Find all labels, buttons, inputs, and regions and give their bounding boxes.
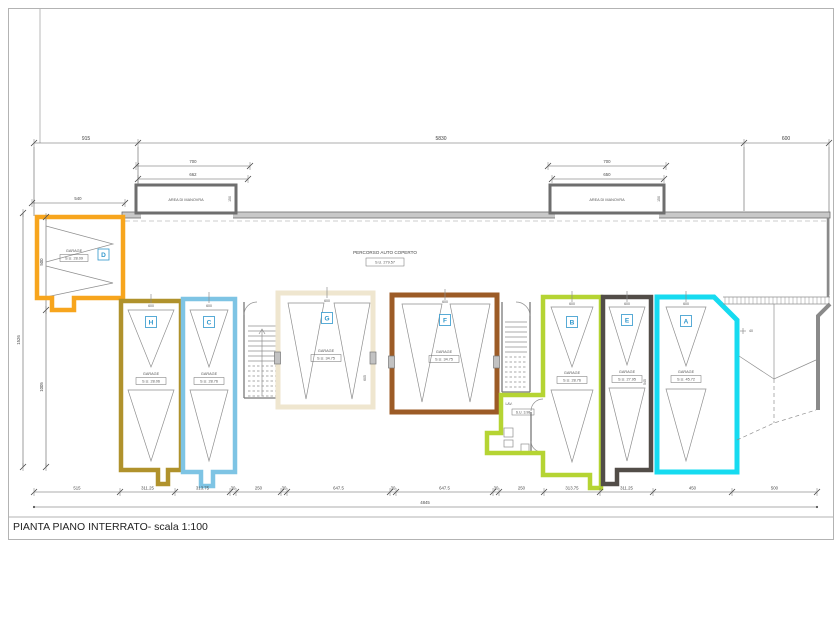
bottom-dim-label: 313.75: [565, 486, 579, 491]
dim-manovra-left-outer: 700: [189, 159, 197, 164]
annex-rooms: LAV. S.U. 3.98: [504, 399, 543, 453]
boundary-wall: AREA DI MANOVRA AREA DI MANOVRA 150 150: [122, 185, 830, 297]
garage-h-su: S.U. 28.06: [142, 380, 160, 384]
dim-g-side: 605: [363, 375, 367, 381]
garage-d-letter: D: [101, 252, 106, 259]
bottom-dim-label: 313.75: [196, 486, 210, 491]
garage-a-topdim: 600: [683, 302, 689, 306]
garage-h-outline: [121, 301, 181, 484]
garage-f-su: S.U. 34.75: [435, 358, 453, 362]
garage-a-letter: A: [684, 319, 689, 326]
retaining-wall-hatch: [725, 297, 829, 304]
garage-f-topdim: 600: [442, 300, 448, 304]
bottom-dim-label: 250: [518, 486, 526, 491]
bottom-dim-label: 250: [255, 486, 263, 491]
garage-h-label: GARAGE: [143, 372, 160, 376]
bottom-dim-label: 30: [391, 486, 396, 491]
bottom-dim-label: 30: [282, 486, 287, 491]
garage-d-su: S.U. 28.09: [65, 257, 83, 261]
garage-b-su: S.U. 28.76: [563, 379, 581, 383]
dim-e-side: 545: [643, 379, 647, 385]
garage-g: 600 G GARAGE S.U. 34.75 605: [275, 287, 377, 407]
stairwell-left: [244, 302, 278, 398]
dim-manovra-left-inner: 662: [189, 172, 197, 177]
bottom-dim-label: 515: [73, 486, 81, 491]
stairwell-right: [502, 302, 530, 392]
bottom-dim-label: 450: [689, 486, 697, 491]
area-manovra-right-label: AREA DI MANOVRA: [589, 198, 625, 202]
dim-manovra-depth-right: 150: [657, 196, 661, 202]
dim-manovra-right-outer: 700: [603, 159, 611, 164]
garage-c-su: S.U. 28.76: [200, 380, 218, 384]
garage-b-letter: B: [570, 320, 575, 327]
dim-d-width: 540: [74, 196, 82, 201]
garage-g-topdim: 600: [324, 299, 330, 303]
garage-f-letter: F: [443, 318, 447, 325]
manovra-dimensions: 700 662 700 650: [136, 159, 666, 179]
garage-b: 600 B GARAGE S.U. 28.76: [487, 291, 601, 488]
garage-d-width-dim: 540: [32, 196, 125, 203]
garage-g-door-stub-left: [275, 352, 281, 364]
garage-a: 600 A GARAGE S.U. 45.72 40: [657, 291, 753, 472]
garage-h-letter: H: [149, 320, 154, 327]
title-block: PIANTA PIANO INTERRATO- scala 1:100: [13, 521, 208, 533]
dim-bottom-total: 4845: [420, 500, 430, 505]
garage-e-topdim: 600: [624, 302, 630, 306]
garage-d-outline: [37, 217, 123, 310]
garage-b-label: GARAGE: [564, 371, 581, 375]
garage-a-outline: [657, 297, 737, 472]
garage-f-label: GARAGE: [436, 350, 453, 354]
annex-room-label: LAV.: [505, 402, 512, 406]
garage-g-label: GARAGE: [318, 349, 335, 353]
bottom-dim-label: 647.5: [439, 486, 450, 491]
dim-manovra-right-inner: 650: [603, 172, 611, 177]
garage-f-door-stub-left: [389, 356, 395, 368]
annex-room-su: S.U. 3.98: [516, 411, 531, 415]
garage-e-letter: E: [625, 318, 630, 325]
dim-manovra-depth-left: 150: [228, 196, 232, 202]
garage-c-letter: C: [207, 320, 212, 327]
garage-h: 600 H GARAGE S.U. 28.06: [121, 294, 181, 484]
dim-left-upper: 500: [39, 258, 44, 266]
plan-drawing: 915 5830 600 700 662 700 650 540 1526 50…: [0, 0, 840, 630]
bottom-dim-label: 311.25: [141, 486, 154, 491]
sheet-title: PIANTA PIANO INTERRATO- scala 1:100: [13, 521, 208, 533]
bottom-dim-label: 30: [494, 486, 499, 491]
bottom-dim-label: 647.5: [333, 486, 344, 491]
dim-top-middle: 5830: [435, 136, 446, 142]
bottom-dimension-row: 515311.25313.753025030647.530647.5302503…: [31, 486, 820, 497]
garage-e-su: S.U. 27.95: [618, 378, 636, 382]
dim-a-corner: 40: [749, 329, 753, 333]
garage-g-letter: G: [324, 316, 329, 323]
garage-b-topdim: 600: [569, 302, 575, 306]
garage-f-door-stub-right: [494, 356, 500, 368]
sheet-frame: [9, 9, 834, 540]
garage-h-topdim: 600: [148, 304, 154, 308]
garage-e: 600 E GARAGE S.U. 27.95 545: [603, 291, 651, 484]
garage-c: 600 C GARAGE S.U. 28.76: [183, 292, 235, 486]
bottom-dim-label: 500: [771, 486, 779, 491]
garage-d-label: GARAGE: [66, 249, 83, 253]
percorso-su: S.U. 279.57: [375, 261, 395, 265]
dim-top-right: 600: [782, 136, 791, 142]
dim-top-left: 915: [82, 136, 91, 142]
percorso-text: PERCORSO AUTO COPERTO: [353, 250, 417, 255]
bottom-total-dim: 4845: [33, 500, 818, 508]
area-manovra-left-label: AREA DI MANOVRA: [168, 198, 204, 202]
garage-a-su: S.U. 45.72: [677, 378, 695, 382]
bottom-dim-label: 311.25: [620, 486, 633, 491]
dim-left-total: 1526: [16, 335, 21, 345]
dim-left-lower: 1005: [39, 382, 44, 392]
percorso-label: PERCORSO AUTO COPERTO S.U. 279.57: [353, 250, 417, 266]
ramp-right-wall: [818, 304, 830, 410]
garage-g-door-stub-right: [370, 352, 376, 364]
garage-a-label: GARAGE: [678, 370, 695, 374]
garage-d: GARAGE S.U. 28.09 D: [37, 217, 123, 310]
garage-c-label: GARAGE: [201, 372, 218, 376]
bottom-dim-label: 30: [231, 486, 236, 491]
garage-f: 600 F GARAGE S.U. 34.75: [389, 289, 500, 412]
left-dimension-column: 1526 500 1005: [16, 213, 46, 467]
garage-g-su: S.U. 34.75: [317, 357, 335, 361]
garage-c-topdim: 600: [206, 304, 212, 308]
floor-plan-sheet: 915 5830 600 700 662 700 650 540 1526 50…: [0, 0, 840, 630]
garage-e-label: GARAGE: [619, 370, 636, 374]
